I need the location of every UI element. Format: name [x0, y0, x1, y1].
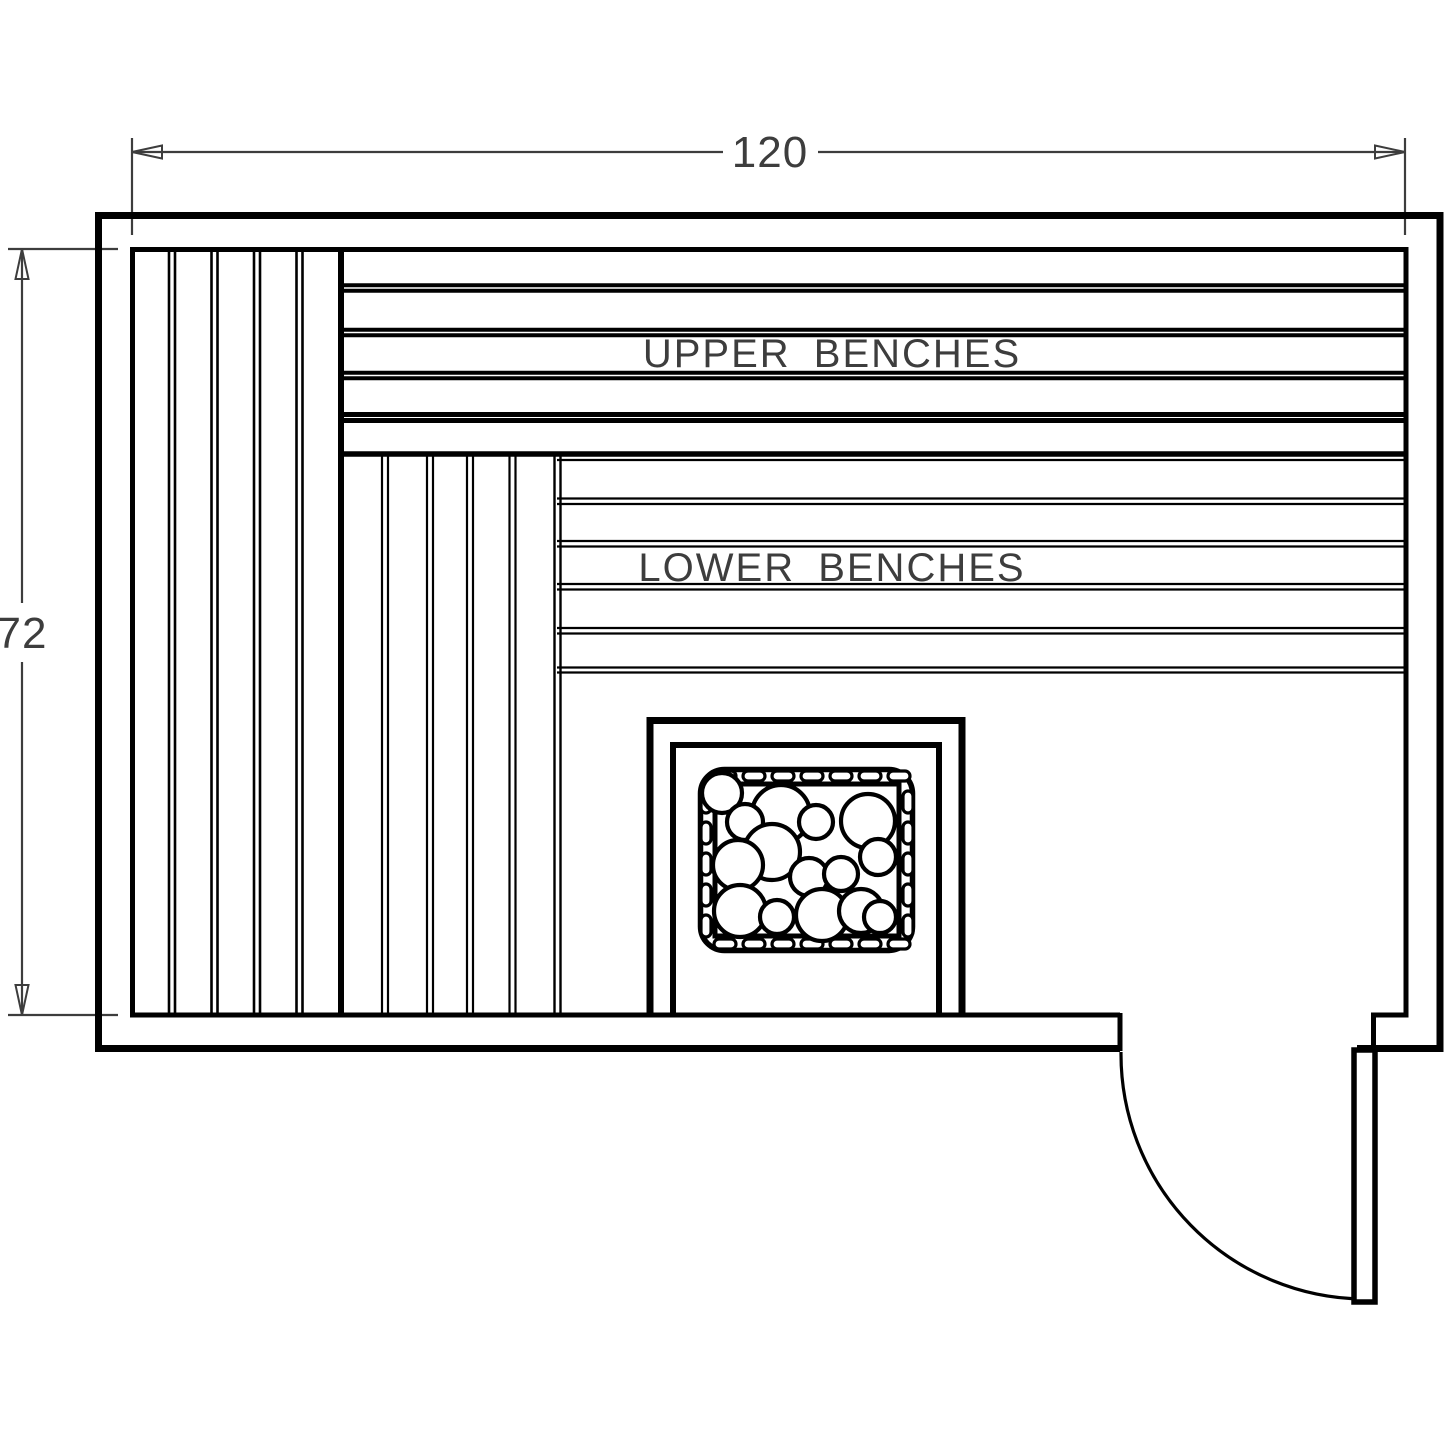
- door: [1121, 1050, 1375, 1302]
- heater-element-pill: [772, 939, 794, 949]
- panel-edge: [555, 456, 561, 1013]
- heater-element-pill: [701, 822, 711, 844]
- heater-element-pill: [859, 939, 881, 949]
- sauna-floor-plan: 120 72 UPPER BENCHES LOWER BENCHES: [0, 0, 1445, 1445]
- heater-rock: [714, 885, 766, 937]
- heater-rock: [824, 857, 858, 891]
- door-swing-arc: [1121, 1052, 1362, 1299]
- heater-element-pill: [888, 939, 910, 949]
- heater: [650, 721, 962, 1014]
- upper-bench-front-edge: [341, 415, 1404, 421]
- heater-rock: [760, 900, 794, 934]
- middle-plank-panel: [382, 456, 561, 1013]
- heater-element-pill: [701, 884, 711, 906]
- floor-plan-drawing: 120 72 UPPER BENCHES LOWER BENCHES: [0, 0, 1445, 1445]
- panel-plank-separators: [169, 250, 303, 1014]
- heater-element-pill: [859, 771, 881, 781]
- heater-rock: [860, 839, 896, 875]
- heater-rock: [864, 901, 896, 933]
- heater-rock: [799, 805, 833, 839]
- panel-plank-separators: [382, 456, 516, 1013]
- heater-rock: [713, 840, 763, 890]
- lower-benches: LOWER BENCHES: [341, 454, 1404, 673]
- door-leaf: [1354, 1050, 1375, 1302]
- heater-element-pill: [701, 915, 711, 937]
- heater-element-pill: [772, 771, 794, 781]
- heater-element-pill: [714, 939, 736, 949]
- height-dimension-value: 72: [0, 609, 47, 658]
- heater-element-pill: [701, 853, 711, 875]
- upper-benches-label: UPPER BENCHES: [643, 332, 1021, 376]
- heater-element-pill: [903, 822, 913, 844]
- heater-rocks: [702, 773, 896, 941]
- heater-element-pill: [830, 771, 852, 781]
- heater-element-pill: [888, 771, 910, 781]
- width-dimension-value: 120: [732, 128, 808, 177]
- lower-benches-label: LOWER BENCHES: [638, 546, 1025, 590]
- heater-element-pill: [903, 853, 913, 875]
- left-plank-panel: [169, 247, 341, 1015]
- upper-benches: UPPER BENCHES: [341, 285, 1404, 420]
- heater-element-pill: [801, 771, 823, 781]
- heater-element-pill: [903, 915, 913, 937]
- heater-element-pill: [903, 791, 913, 813]
- heater-element-pill: [903, 884, 913, 906]
- heater-element-pill: [743, 771, 765, 781]
- heater-element-pill: [743, 939, 765, 949]
